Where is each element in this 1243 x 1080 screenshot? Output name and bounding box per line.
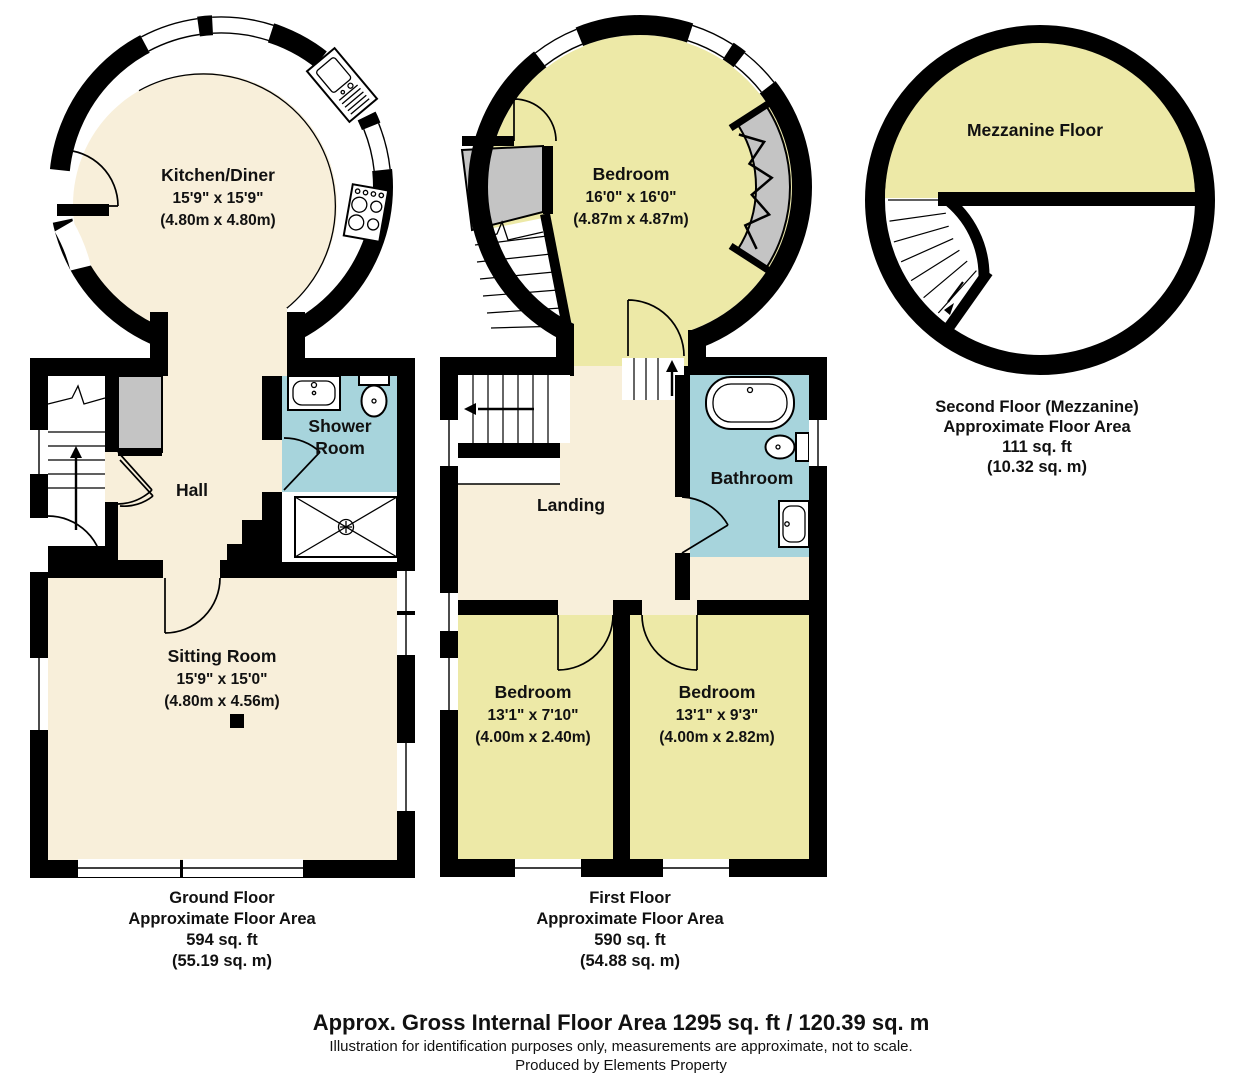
landing-label: Landing [537,495,605,515]
sitting-room-label: Sitting Room [168,646,277,666]
bedroom-wall-right [697,600,809,615]
neck-wall-left [150,312,168,376]
bedroom-left-dims-imperial: 13'1" x 7'10" [487,707,578,724]
svg-text:590 sq. ft: 590 sq. ft [594,931,666,949]
chimney-step-2 [227,544,267,562]
landing-staircase [458,375,570,484]
bedroom-right-dims-imperial: 13'1" x 9'3" [676,707,758,724]
bedroom-right-label: Bedroom [679,682,756,702]
hob-icon [344,184,388,241]
bathtub-icon [706,377,794,429]
shower-sitting-wall [282,562,397,578]
bedroom-left-label: Bedroom [495,682,572,702]
ground-floor-caption: Ground Floor Approximate Floor Area 594 … [128,889,316,970]
first-neck-wall-right [688,330,706,376]
svg-text:Ground Floor: Ground Floor [169,889,275,907]
neck-wall-right [287,312,305,376]
svg-text:594 sq. ft: 594 sq. ft [186,931,258,949]
first-neck-wall-left [556,330,574,376]
mezzanine-label: Mezzanine Floor [967,120,1103,140]
shower-room: Shower Room [262,375,397,578]
first-floor-caption: First Floor Approximate Floor Area 590 s… [536,889,724,970]
svg-text:First Floor: First Floor [589,889,671,907]
bedroom-main-label: Bedroom [593,164,670,184]
floorplan-drawing: Kitchen/Diner 15'9" x 15'9" (4.80m x 4.8… [0,0,1243,1080]
ground-floor-plan: Kitchen/Diner 15'9" x 15'9" (4.80m x 4.8… [30,17,415,970]
bathroom-basin-icon [779,501,809,547]
svg-text:Approximate Floor Area: Approximate Floor Area [943,418,1131,436]
svg-text:Approximate Floor Area: Approximate Floor Area [536,910,724,928]
svg-text:(55.19 sq. m): (55.19 sq. m) [172,952,272,970]
bathroom-toilet-icon [766,433,810,461]
second-floor-plan: Mezzanine Floor Second Floor (Mezzanine)… [875,35,1205,476]
kitchen-dims-metric: (4.80m x 4.80m) [160,212,275,229]
second-floor-caption: Second Floor (Mezzanine) Approximate Flo… [935,398,1139,476]
bedroom-main-dims-metric: (4.87m x 4.87m) [573,211,688,228]
shower-tray-icon [295,497,397,557]
kitchen-dims-imperial: 15'9" x 15'9" [172,190,263,207]
floorplan-page: Kitchen/Diner 15'9" x 15'9" (4.80m x 4.8… [0,0,1243,1080]
bedroom-wall-left [458,600,558,615]
svg-text:Second Floor (Mezzanine): Second Floor (Mezzanine) [935,398,1139,416]
footer-title: Approx. Gross Internal Floor Area 1295 s… [313,1010,930,1035]
footer: Approx. Gross Internal Floor Area 1295 s… [313,1010,930,1074]
footer-disclaimer: Illustration for identification purposes… [329,1038,912,1055]
kitchen-label: Kitchen/Diner [161,165,275,185]
first-floor-plan: Bedroom 16'0" x 16'0" (4.87m x 4.87m) [440,25,827,970]
shower-room-label-2: Room [315,438,365,458]
bedroom-left-dims-metric: (4.00m x 2.40m) [475,729,590,746]
bedroom-wall-center [613,600,642,615]
mezzanine-edge-wall [938,192,1196,206]
hall-sitting-wall-left [30,560,163,578]
bedroom-main-dims-imperial: 16'0" x 16'0" [585,189,676,206]
svg-text:111 sq. ft: 111 sq. ft [1002,438,1072,456]
hall-sitting-wall-right [220,560,282,578]
svg-text:(54.88 sq. m): (54.88 sq. m) [580,952,680,970]
bedroom-right-dims-metric: (4.00m x 2.82m) [659,729,774,746]
svg-text:Approximate Floor Area: Approximate Floor Area [128,910,316,928]
shower-basin-icon [288,376,340,410]
svg-text:(10.32 sq. m): (10.32 sq. m) [987,458,1087,476]
hall-label: Hall [176,480,208,500]
footer-credit: Produced by Elements Property [515,1057,727,1074]
kitchen-hall-neck [168,308,287,376]
fireplace-icon [230,714,244,728]
sitting-room-dims-metric: (4.80m x 4.56m) [164,693,279,710]
mezzanine-access-stairs [622,358,684,400]
bathroom-label: Bathroom [711,468,794,488]
shower-toilet-icon [359,375,389,417]
shower-room-label-1: Shower [308,416,371,436]
bedroom-divider-wall [613,615,630,859]
sitting-room-dims-imperial: 15'9" x 15'0" [176,671,267,688]
